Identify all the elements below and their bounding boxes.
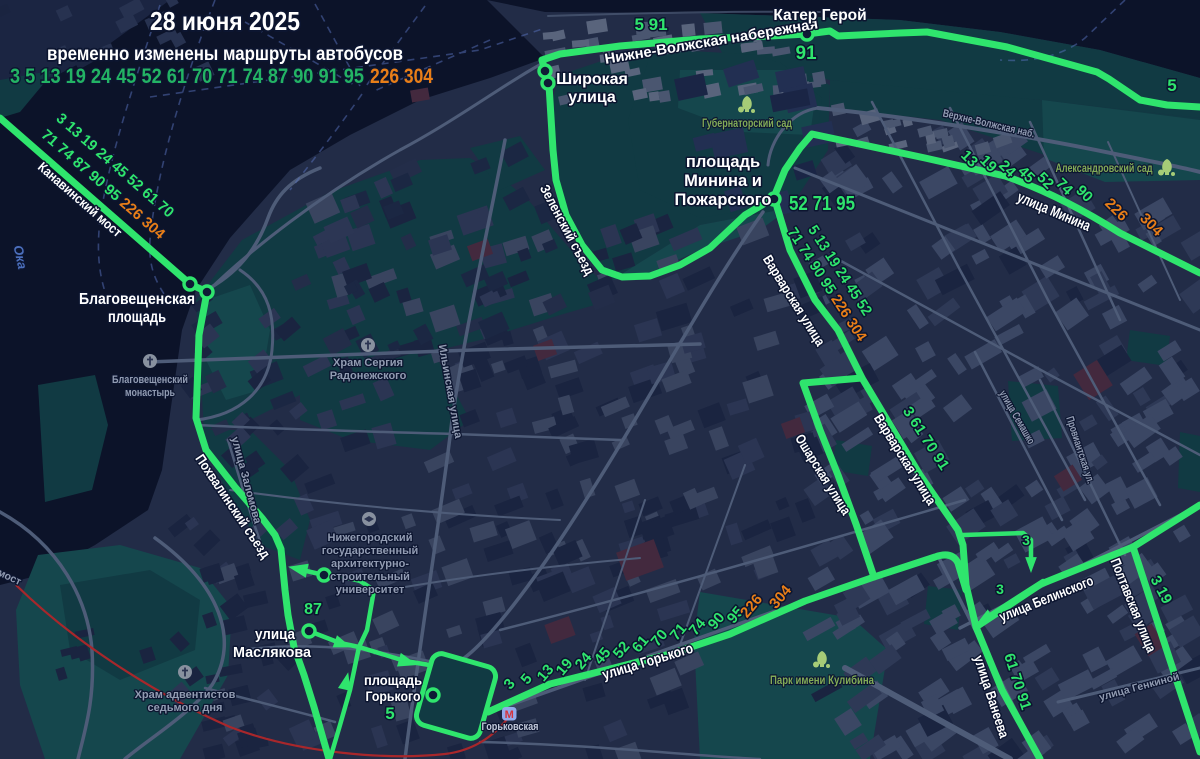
svg-text:5 91: 5 91 bbox=[634, 15, 667, 34]
svg-text:3 5 13 19 24 45 52 61 70 71: 3 5 13 19 24 45 52 61 70 71 74 87 90 91 … bbox=[10, 64, 433, 88]
svg-text:М: М bbox=[505, 709, 514, 721]
svg-text:монастырь: монастырь bbox=[125, 387, 175, 399]
svg-text:улица: улица bbox=[568, 89, 616, 106]
svg-text:3: 3 bbox=[996, 581, 1004, 597]
svg-text:Александровский сад: Александровский сад bbox=[1056, 163, 1154, 175]
svg-text:Широкая: Широкая bbox=[556, 71, 628, 88]
svg-text:Благовещенский: Благовещенский bbox=[112, 374, 188, 386]
svg-text:площадь: площадь bbox=[686, 153, 760, 171]
svg-text:строительный: строительный bbox=[330, 571, 410, 583]
svg-text:91: 91 bbox=[795, 43, 817, 64]
svg-text:5: 5 bbox=[1167, 76, 1176, 95]
svg-text:Нижегородский: Нижегородский bbox=[328, 532, 413, 544]
svg-text:Катер Герой: Катер Герой bbox=[773, 7, 866, 24]
svg-text:улица: улица bbox=[255, 626, 296, 643]
svg-text:Горького: Горького bbox=[366, 688, 421, 704]
svg-text:временно изменены маршруты авт: временно изменены маршруты автобусов bbox=[47, 43, 403, 65]
svg-text:Храм Сергия: Храм Сергия bbox=[333, 357, 403, 369]
svg-text:университет: университет bbox=[336, 584, 405, 596]
svg-text:седьмого дня: седьмого дня bbox=[148, 702, 223, 714]
svg-text:Горьковская: Горьковская bbox=[482, 721, 539, 733]
svg-text:Минина и: Минина и bbox=[684, 172, 762, 190]
svg-text:3: 3 bbox=[1022, 532, 1030, 548]
svg-text:Парк имени Кулибина: Парк имени Кулибина bbox=[770, 673, 874, 687]
svg-text:Пожарского: Пожарского bbox=[675, 191, 772, 209]
svg-text:Губернаторский сад: Губернаторский сад bbox=[702, 116, 792, 130]
svg-text:87: 87 bbox=[304, 601, 322, 618]
svg-text:государственный: государственный bbox=[322, 545, 418, 557]
svg-text:5: 5 bbox=[385, 704, 394, 723]
svg-text:площадь: площадь bbox=[364, 672, 422, 688]
svg-text:Радонежского: Радонежского bbox=[330, 370, 407, 382]
svg-text:площадь: площадь bbox=[108, 309, 166, 326]
svg-text:Благовещенская: Благовещенская bbox=[79, 291, 195, 308]
svg-text:28 июня 2025: 28 июня 2025 bbox=[150, 6, 300, 36]
svg-text:Маслякова: Маслякова bbox=[233, 644, 312, 661]
svg-text:52 71 95: 52 71 95 bbox=[789, 193, 855, 215]
svg-text:архитектурно-: архитектурно- bbox=[331, 558, 409, 570]
svg-text:Храм адвентистов: Храм адвентистов bbox=[135, 689, 236, 701]
